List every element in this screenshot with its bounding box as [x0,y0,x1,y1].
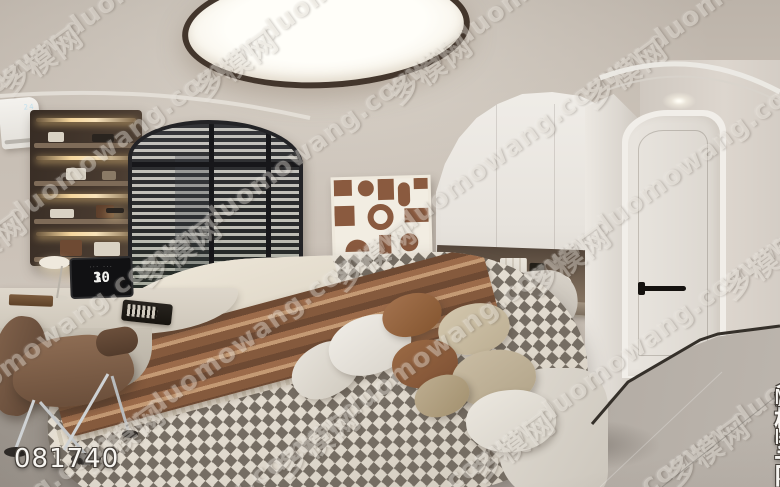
panorama-bedroom-photo: 24 [0,0,780,487]
watermark-layer: 多模网www.duomowang.com多模网www.duomowang.com… [0,0,780,487]
model-id-value: M0078809 [774,387,780,407]
watermark-tile: 多模网www.duomowang.com [574,0,780,108]
photo-id-label: 081740 [14,444,119,474]
